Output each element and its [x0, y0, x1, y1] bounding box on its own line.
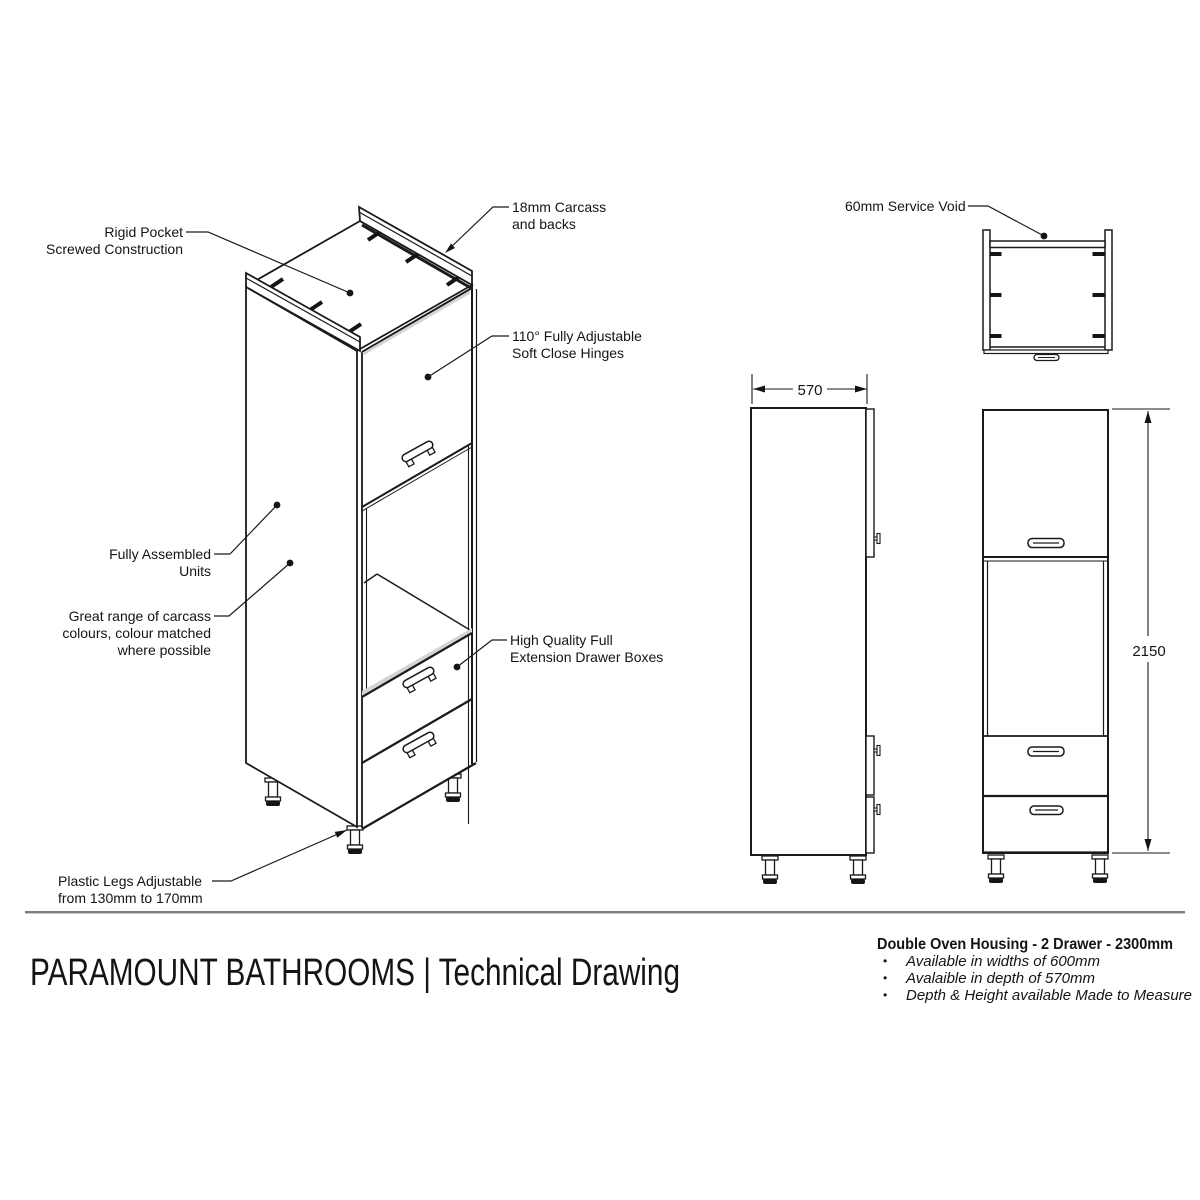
- dimension-label-height: 2150: [1132, 643, 1165, 660]
- annotation-text: 18mm Carcass: [512, 199, 606, 215]
- side-view: 570: [751, 374, 880, 884]
- dimension-arrow-top: [1145, 411, 1152, 423]
- bullet-text: Available in widths of 600mm: [905, 953, 1100, 970]
- technical-drawing-canvas: Rigid Pocket Screwed Construction 18mm C…: [0, 0, 1200, 1200]
- leader-line: [448, 207, 509, 250]
- front-door-handle: [1028, 539, 1064, 548]
- annotation-text: Soft Close Hinges: [512, 345, 624, 361]
- side-drawer-panel-2: [866, 797, 874, 853]
- dimension-2150: 2150: [1112, 409, 1172, 853]
- product-info: Double Oven Housing - 2 Drawer - 2300mm …: [877, 936, 1192, 1004]
- annotation-text: 60mm Service Void: [845, 198, 966, 214]
- front-view: 2150: [983, 409, 1172, 883]
- annotation-text: Rigid Pocket: [104, 224, 183, 240]
- dimension-570: 570: [752, 374, 867, 404]
- leader-line: [968, 206, 1044, 236]
- front-drawer-handle-2: [1030, 806, 1063, 815]
- divider-line: [25, 911, 1185, 913]
- dimension-arrow-bottom: [1145, 839, 1152, 851]
- leader-line: [212, 830, 347, 881]
- leg-side-left: [762, 856, 778, 884]
- bullet-text: Avalaible in depth of 570mm: [905, 970, 1095, 987]
- annotation-text: High Quality Full: [510, 632, 613, 648]
- annotation-legs: Plastic Legs Adjustable from 130mm to 17…: [58, 830, 347, 906]
- annotation-text: and backs: [512, 216, 576, 232]
- leader-dot: [274, 502, 281, 509]
- product-name: Double Oven Housing - 2 Drawer - 2300mm: [877, 936, 1173, 953]
- leg-front-center: [347, 826, 363, 854]
- leader-dot: [1041, 233, 1048, 240]
- dimension-label-depth: 570: [797, 382, 822, 399]
- side-door-handle: [874, 534, 880, 544]
- annotation-text: Units: [179, 563, 211, 579]
- product-bullet-3: • Depth & Height available Made to Measu…: [883, 987, 1192, 1004]
- isometric-view: [246, 207, 477, 854]
- annotation-text: where possible: [117, 642, 212, 658]
- top-view-side-panel-right: [1105, 230, 1112, 350]
- screw-marks-top-view: [990, 252, 1105, 338]
- front-body: [983, 410, 1108, 853]
- side-drawer-handle-2: [874, 805, 880, 815]
- annotation-text: Great range of carcass: [69, 608, 211, 624]
- side-drawer-panel-1: [866, 736, 874, 795]
- product-bullet-2: • Avalaible in depth of 570mm: [883, 970, 1095, 987]
- annotation-text: Screwed Construction: [46, 241, 183, 257]
- top-view-handle: [1034, 355, 1059, 361]
- side-drawer-handle-1: [874, 746, 880, 756]
- annotation-text: Plastic Legs Adjustable: [58, 873, 202, 889]
- page-title: PARAMOUNT BATHROOMS | Technical Drawing: [30, 952, 680, 994]
- front-face: [362, 285, 477, 829]
- annotation-text: Extension Drawer Boxes: [510, 649, 663, 665]
- leg-front-view-right: [1092, 855, 1108, 883]
- leg-side-right: [850, 856, 866, 884]
- annotation-text: Fully Assembled: [109, 546, 211, 562]
- annotation-text: from 130mm to 170mm: [58, 890, 203, 906]
- dimension-arrow-right: [855, 386, 867, 393]
- side-body: [751, 408, 866, 855]
- annotation-drawer-boxes: High Quality Full Extension Drawer Boxes: [454, 632, 664, 670]
- technical-drawing-page: Rigid Pocket Screwed Construction 18mm C…: [0, 0, 1200, 1200]
- leader-dot: [347, 290, 354, 297]
- annotation-carcass: 18mm Carcass and backs: [445, 199, 606, 253]
- top-view: [983, 230, 1112, 361]
- top-view-door-slab: [984, 350, 1108, 354]
- leader-dot: [454, 664, 461, 671]
- bullet-icon: •: [883, 988, 887, 1002]
- annotation-text: 110° Fully Adjustable: [512, 328, 642, 344]
- side-panel-left: [246, 287, 357, 827]
- leg-front-view-left: [988, 855, 1004, 883]
- bullet-icon: •: [883, 954, 887, 968]
- annotation-text: colours, colour matched: [62, 625, 211, 641]
- top-view-back-panel: [990, 241, 1105, 248]
- leader-arrow: [335, 830, 347, 838]
- bullet-text: Depth & Height available Made to Measure: [906, 987, 1192, 1004]
- bullet-icon: •: [883, 971, 887, 985]
- annotation-service-void: 60mm Service Void: [845, 198, 1047, 239]
- side-door-panel: [866, 409, 874, 557]
- leader-dot: [287, 560, 294, 567]
- front-drawer-handle-1: [1028, 747, 1064, 756]
- leader-dot: [425, 374, 432, 381]
- dimension-arrow-left: [753, 386, 765, 393]
- top-view-side-panel-left: [983, 230, 990, 350]
- product-bullet-1: • Available in widths of 600mm: [883, 953, 1100, 970]
